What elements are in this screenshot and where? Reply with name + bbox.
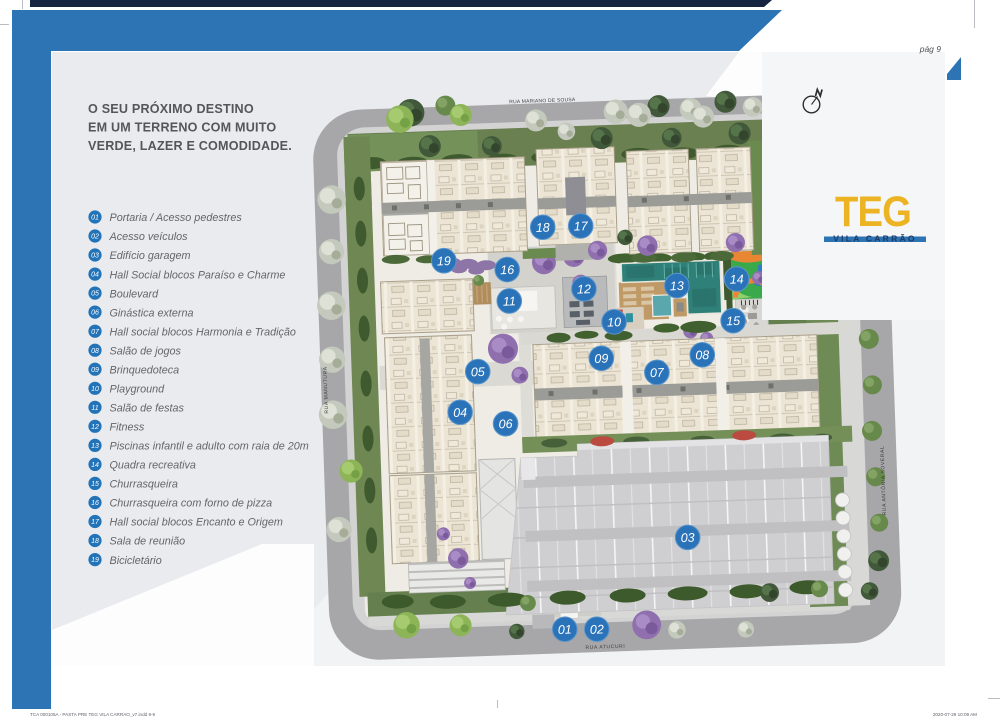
svg-text:Quadra recreativa: Quadra recreativa bbox=[110, 460, 196, 472]
svg-text:18: 18 bbox=[536, 221, 550, 235]
svg-text:01: 01 bbox=[91, 215, 99, 222]
svg-text:16: 16 bbox=[500, 263, 514, 277]
svg-text:Playground: Playground bbox=[110, 384, 166, 396]
svg-text:05: 05 bbox=[471, 365, 485, 379]
svg-text:pág 9: pág 9 bbox=[919, 44, 942, 54]
svg-text:Boulevard: Boulevard bbox=[110, 288, 160, 300]
svg-text:Sala de reunião: Sala de reunião bbox=[110, 536, 186, 548]
svg-text:Hall Social blocos Paraíso e C: Hall Social blocos Paraíso e Charme bbox=[110, 269, 286, 281]
svg-text:Fitness: Fitness bbox=[110, 422, 145, 434]
svg-text:EM UM TERRENO COM MUITO: EM UM TERRENO COM MUITO bbox=[88, 121, 276, 135]
svg-text:06: 06 bbox=[91, 310, 99, 317]
svg-text:14: 14 bbox=[729, 272, 743, 286]
svg-text:03: 03 bbox=[680, 531, 694, 545]
svg-text:02: 02 bbox=[590, 622, 604, 636]
svg-text:06: 06 bbox=[498, 417, 512, 431]
svg-text:Salão de jogos: Salão de jogos bbox=[110, 345, 182, 357]
svg-text:14: 14 bbox=[91, 462, 99, 469]
svg-text:Hall social blocos Encanto e O: Hall social blocos Encanto e Origem bbox=[110, 517, 283, 529]
svg-text:Churrasqueira com forno de piz: Churrasqueira com forno de pizza bbox=[110, 498, 273, 510]
svg-text:Acesso veículos: Acesso veículos bbox=[109, 231, 189, 243]
svg-text:TCA 000105A - PASTA PRE TEG VI: TCA 000105A - PASTA PRE TEG VILA CARRAO_… bbox=[30, 712, 156, 717]
svg-text:Bicicletário: Bicicletário bbox=[110, 555, 162, 567]
svg-text:16: 16 bbox=[91, 500, 99, 507]
svg-text:07: 07 bbox=[650, 366, 665, 381]
svg-text:07: 07 bbox=[91, 329, 100, 336]
svg-text:TEG: TEG bbox=[835, 188, 911, 236]
svg-text:Portaria / Acesso pedestres: Portaria / Acesso pedestres bbox=[110, 212, 243, 224]
svg-text:15: 15 bbox=[91, 481, 99, 488]
svg-text:09: 09 bbox=[91, 367, 99, 374]
svg-text:2020-07-29 10:09 AM: 2020-07-29 10:09 AM bbox=[933, 712, 977, 717]
svg-text:Brinquedoteca: Brinquedoteca bbox=[110, 364, 180, 376]
svg-text:04: 04 bbox=[91, 272, 99, 279]
svg-text:Piscinas infantil e adulto com: Piscinas infantil e adulto com raia de 2… bbox=[110, 441, 309, 453]
svg-text:O SEU PRÓXIMO DESTINO: O SEU PRÓXIMO DESTINO bbox=[88, 101, 254, 116]
svg-text:15: 15 bbox=[726, 314, 740, 328]
svg-text:11: 11 bbox=[503, 294, 516, 308]
svg-text:Churrasqueira: Churrasqueira bbox=[110, 479, 178, 491]
svg-text:17: 17 bbox=[574, 219, 589, 234]
svg-text:Ginástica externa: Ginástica externa bbox=[110, 307, 194, 319]
svg-text:13: 13 bbox=[91, 443, 99, 450]
svg-text:VILA CARRÃO: VILA CARRÃO bbox=[833, 234, 917, 244]
svg-text:Edifício garagem: Edifício garagem bbox=[110, 250, 191, 262]
svg-text:11: 11 bbox=[91, 405, 98, 412]
svg-text:VERDE, LAZER E COMODIDADE.: VERDE, LAZER E COMODIDADE. bbox=[88, 139, 292, 153]
svg-text:12: 12 bbox=[577, 282, 591, 296]
svg-text:Salão de festas: Salão de festas bbox=[110, 403, 185, 415]
svg-text:12: 12 bbox=[91, 424, 99, 431]
svg-text:19: 19 bbox=[437, 254, 451, 268]
svg-text:08: 08 bbox=[695, 348, 709, 362]
svg-text:17: 17 bbox=[91, 519, 100, 526]
svg-text:19: 19 bbox=[91, 557, 99, 564]
svg-text:02: 02 bbox=[91, 234, 99, 241]
svg-text:10: 10 bbox=[91, 386, 99, 393]
svg-text:04: 04 bbox=[453, 406, 467, 420]
svg-text:13: 13 bbox=[670, 279, 684, 293]
svg-text:09: 09 bbox=[594, 352, 608, 366]
svg-text:18: 18 bbox=[91, 538, 99, 545]
svg-text:05: 05 bbox=[91, 291, 99, 298]
svg-text:Hall social blocos Harmonia e: Hall social blocos Harmonia e Tradição bbox=[110, 326, 296, 338]
svg-text:10: 10 bbox=[607, 315, 621, 329]
svg-text:08: 08 bbox=[91, 348, 99, 355]
svg-text:03: 03 bbox=[91, 253, 99, 260]
svg-text:01: 01 bbox=[558, 622, 572, 636]
